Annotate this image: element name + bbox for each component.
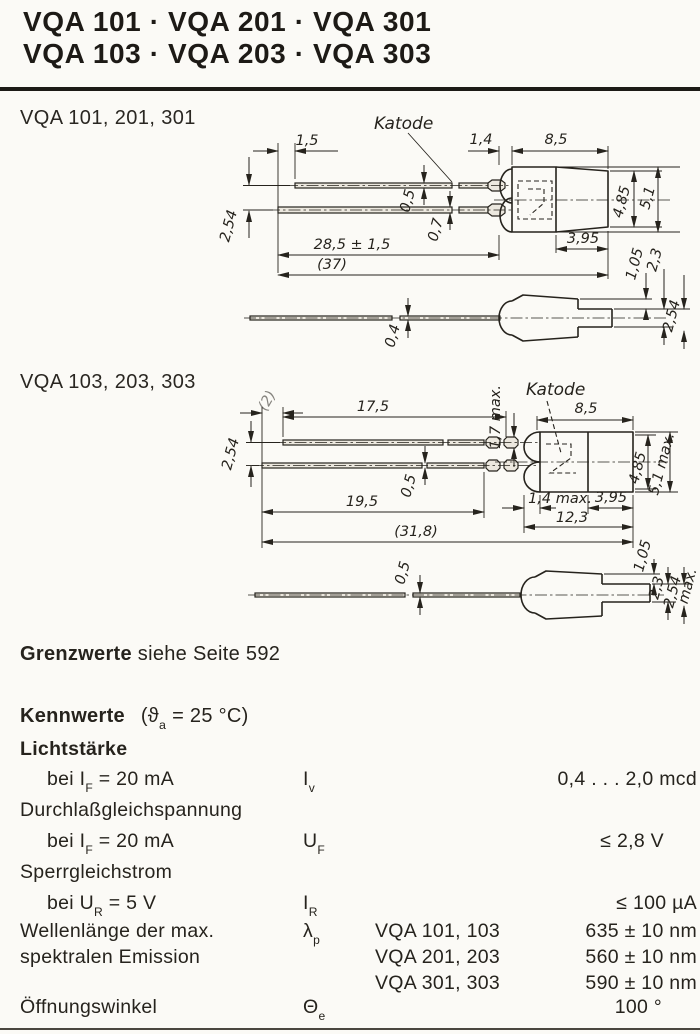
property-label: Lichtstärke xyxy=(20,738,127,761)
datasheet-page: VQA 101 · VQA 201 · VQA 301 VQA 103 · VQ… xyxy=(0,0,700,1034)
table-row-iv: bei IF = 20 mA Iv 0,4 . . . 2,0 mcd xyxy=(0,768,700,795)
condition-label: bei IF = 20 mA xyxy=(47,830,174,853)
property-label-line2: spektralen Emission xyxy=(20,946,200,969)
header-rule xyxy=(0,87,700,91)
table-row-durchlass: Durchlaßgleichspannung xyxy=(0,799,700,826)
d2-dim-total: (31,8) xyxy=(394,524,438,540)
page-title: VQA 101 · VQA 201 · VQA 301 VQA 103 · VQ… xyxy=(23,6,431,70)
d2-dim-pitch: 2,54 xyxy=(219,436,243,471)
d1-katode-label: Katode xyxy=(374,114,433,134)
page-title-line1: VQA 101 · VQA 201 · VQA 301 xyxy=(23,6,431,38)
table-row-ir: bei UR = 5 V IR ≤ 100 µA xyxy=(0,892,700,919)
d2-dim-rear: 3,95 xyxy=(595,490,627,506)
property-label: Öffnungswinkel xyxy=(20,996,157,1019)
variant-value: 635 ± 10 nm xyxy=(585,920,697,943)
table-row-lichtstaerke: Lichtstärke xyxy=(0,738,700,765)
condition-label: bei IF = 20 mA xyxy=(47,768,174,791)
d1-side-dimensions: 0,4 1,05 2,3 2,54 xyxy=(382,246,690,349)
d1-top-view-geometry xyxy=(268,167,670,232)
d1-dim-lead-offset: 1,5 xyxy=(295,133,318,149)
d2-dim-dia-face: 4,85 xyxy=(626,450,650,485)
symbol-ir: IR xyxy=(303,892,318,915)
d2-dim-dia-max: 5,1 max. xyxy=(646,431,678,497)
symbol-uf: UF xyxy=(303,830,325,853)
variant-value: 560 ± 10 nm xyxy=(585,946,697,969)
d2-dim-side-lead: 0,5 xyxy=(392,560,413,586)
d1-dim-rear: 3,95 xyxy=(567,231,599,247)
kennwerte-condition: (ϑa = 25 °C) xyxy=(141,705,249,727)
symbol-lambda-p: λp xyxy=(303,920,320,943)
d1-dim-total: (37) xyxy=(317,257,347,273)
d2-top-view-geometry xyxy=(252,401,668,492)
property-label: Sperrgleichstrom xyxy=(20,861,172,884)
d1-dim-bead: 1,4 xyxy=(469,132,492,148)
table-row-oeffnungswinkel: Öffnungswinkel Θe 100 ° xyxy=(0,996,700,1023)
value-theta-e: 100 ° xyxy=(615,996,662,1019)
kennwerte-title: Kennwerte xyxy=(20,705,125,727)
grenzwerte-rest: siehe Seite 592 xyxy=(132,643,280,665)
value-uf: ≤ 2,8 V xyxy=(600,830,664,853)
variant-name: VQA 101, 103 xyxy=(375,920,500,943)
value-iv: 0,4 . . . 2,0 mcd xyxy=(558,768,698,791)
variant-name: VQA 301, 303 xyxy=(375,972,500,995)
property-label-line1: Wellenlänge der max. xyxy=(20,920,214,943)
kennwerte-heading: Kennwerte (ϑa = 25 °C) xyxy=(20,705,249,728)
d2-dim-side-tab-suffix: max. xyxy=(676,566,700,605)
d1-dim-dia-face: 4,85 xyxy=(610,184,634,219)
technical-drawing-vqa103: (2) 17,5 1,7 max. Katode 8,5 2,54 xyxy=(0,375,700,637)
d2-katode-label: Katode xyxy=(526,380,585,400)
d2-dim-lead-offset: (2) xyxy=(255,388,279,414)
property-label: Durchlaßgleichspannung xyxy=(20,799,242,822)
d2-dim-step: 1,05 xyxy=(631,538,655,573)
table-row-uf: bei IF = 20 mA UF ≤ 2,8 V xyxy=(0,830,700,857)
d2-dim-lead: 0,5 xyxy=(398,473,419,499)
variant-name: VQA 201, 203 xyxy=(375,946,500,969)
d2-dim-front: 1,4 max. xyxy=(528,491,592,507)
d2-side-dimensions: 0,5 1,05 2,3 2,54 max. xyxy=(392,538,700,624)
d1-dim-side-lead: 0,4 xyxy=(382,323,403,349)
symbol-theta-e: Θe xyxy=(303,996,326,1019)
condition-label: bei UR = 5 V xyxy=(47,892,156,915)
d1-dim-pitch: 2,54 xyxy=(217,208,241,243)
d1-dim-dia-max: 5,1 xyxy=(637,185,658,211)
technical-drawing-vqa101: 1,5 2,54 Katode 1,4 8,5 0,5 0,7 xyxy=(0,105,700,370)
value-ir: ≤ 100 µA xyxy=(616,892,697,915)
page-title-line2: VQA 103 · VQA 203 · VQA 303 xyxy=(23,38,431,70)
grenzwerte-note: Grenzwerte siehe Seite 592 xyxy=(20,643,280,666)
d2-dim-lower-length: 19,5 xyxy=(346,494,378,510)
d2-dim-crimp: 1,7 max. xyxy=(488,385,504,449)
grenzwerte-label: Grenzwerte xyxy=(20,643,132,665)
d1-dim-lead-length: 28,5 ± 1,5 xyxy=(314,237,391,253)
d1-dim-tab: 2,3 xyxy=(644,247,665,273)
table-row-sperr: Sperrgleichstrom xyxy=(0,861,700,888)
d1-dim-step: 1,05 xyxy=(623,246,647,281)
d2-dim-body: 8,5 xyxy=(574,401,597,417)
footer-rule xyxy=(0,1028,700,1030)
table-row-wellenlaenge: Wellenlänge der max. spektralen Emission… xyxy=(0,920,700,1004)
d1-side-view-geometry xyxy=(244,295,668,341)
symbol-iv: Iv xyxy=(303,768,315,791)
variant-value: 590 ± 10 nm xyxy=(585,972,697,995)
d2-side-view-geometry xyxy=(248,571,664,619)
d1-dim-body: 8,5 xyxy=(544,132,567,148)
d1-dimensions: 1,5 2,54 Katode 1,4 8,5 0,5 0,7 xyxy=(217,114,680,279)
d2-dim-upper-length: 17,5 xyxy=(357,399,389,415)
d1-dim-lower-lead: 0,7 xyxy=(425,216,447,243)
d2-dim-mid: 12,3 xyxy=(556,510,588,526)
